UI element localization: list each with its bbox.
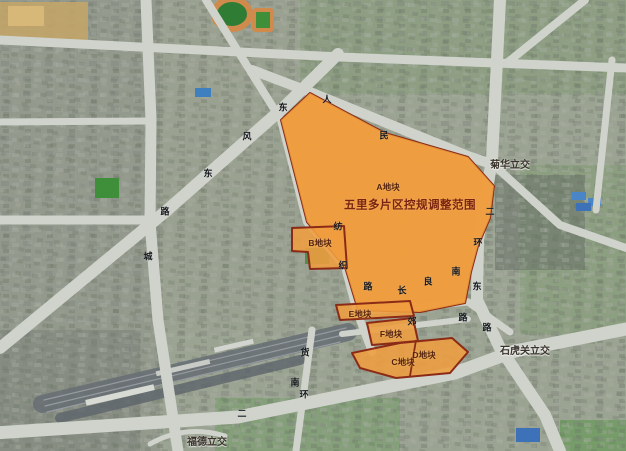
map-canvas: [0, 0, 626, 451]
satellite-planning-map: 五里多片区控规调整范围 A地块 B地块 E地块 F地块 C地块 D地块 菊华立交…: [0, 0, 626, 451]
soccer-field: [95, 178, 119, 198]
pool: [195, 88, 211, 97]
parcel-e-area: [336, 301, 414, 320]
sports-field: [256, 12, 270, 28]
road-west-horizontal: [0, 121, 148, 122]
tan-rooftop: [8, 6, 44, 26]
parcel-f-area: [367, 318, 418, 345]
